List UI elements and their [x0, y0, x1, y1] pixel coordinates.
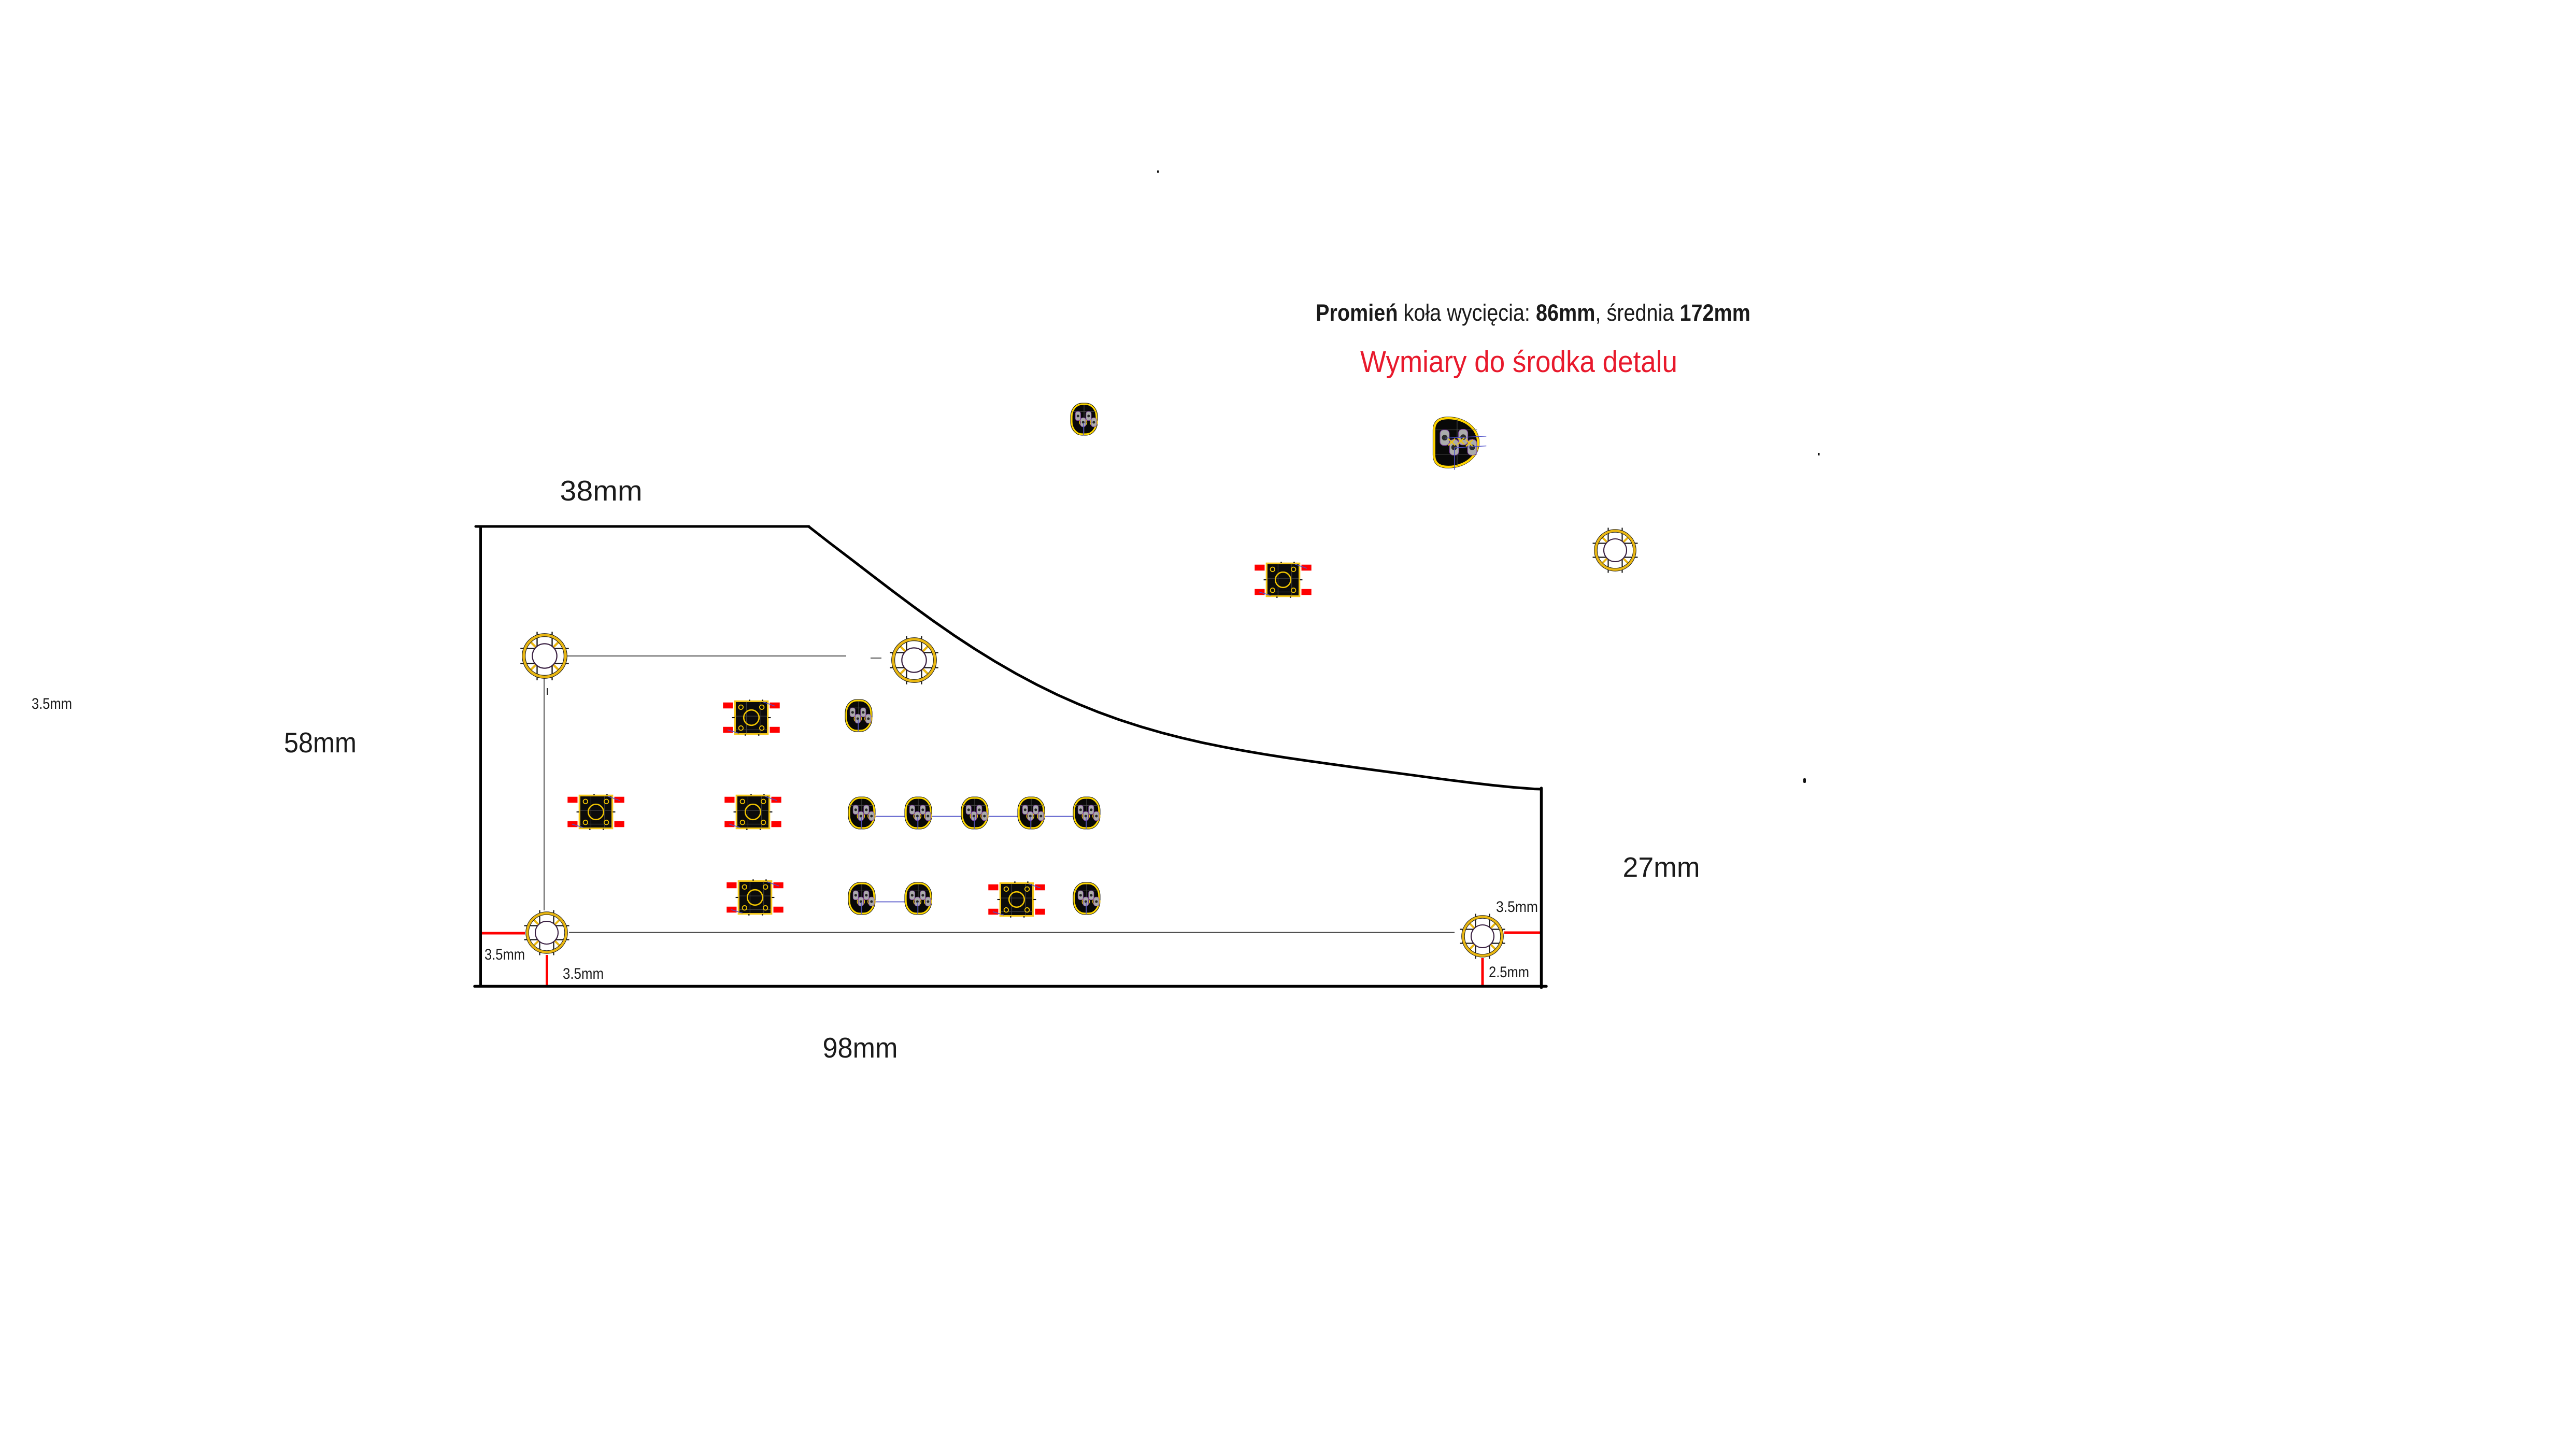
svg-text:27mm: 27mm	[1623, 852, 1700, 883]
svg-text:98mm: 98mm	[823, 1032, 898, 1064]
svg-text:38mm: 38mm	[560, 475, 643, 507]
svg-text:3.5mm: 3.5mm	[485, 946, 525, 963]
svg-text:2.5mm: 2.5mm	[1489, 964, 1529, 981]
svg-text:Promień koła wycięcia: 86mm, ś: Promień koła wycięcia: 86mm, średnia 172…	[1316, 299, 1750, 326]
svg-text:3.5mm: 3.5mm	[32, 695, 72, 712]
svg-text:3.5mm: 3.5mm	[1496, 898, 1538, 916]
svg-text:3.5mm: 3.5mm	[563, 965, 604, 982]
svg-text:Wymiary do środka detalu: Wymiary do środka detalu	[1360, 345, 1677, 379]
svg-text:58mm: 58mm	[284, 726, 357, 759]
